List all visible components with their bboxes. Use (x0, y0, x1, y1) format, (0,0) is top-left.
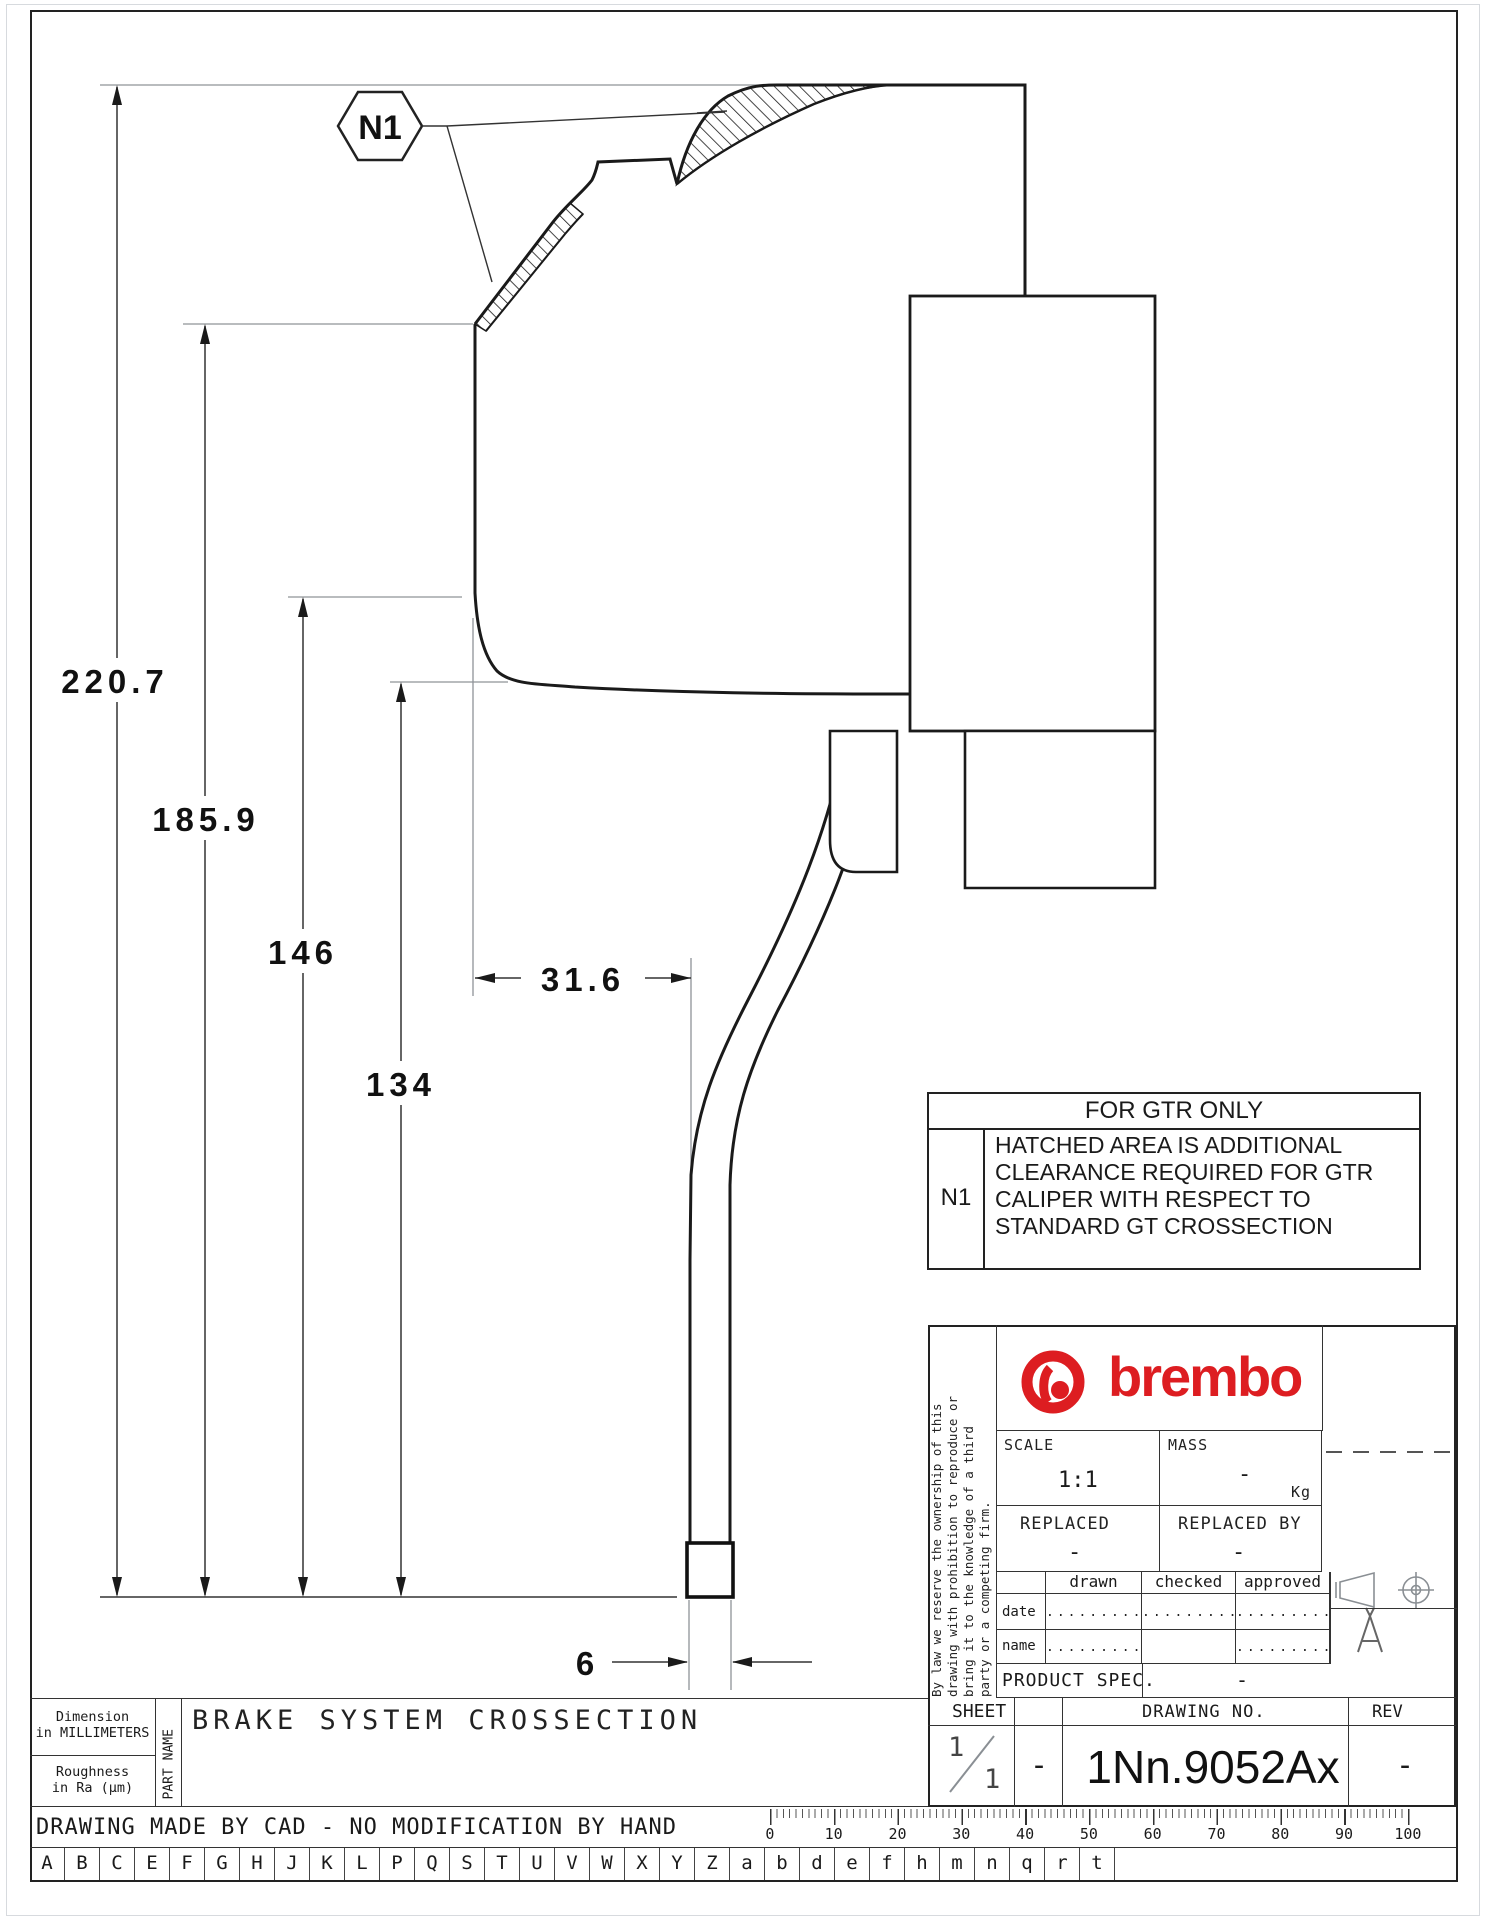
dim-185-9: 185.9 (152, 801, 260, 838)
caliper-outline (830, 296, 1155, 888)
name-drawn-cell: ......... (1046, 1630, 1142, 1664)
name-row-label: name (1002, 1638, 1036, 1654)
date-checked-dots: ......... (1142, 1605, 1239, 1620)
replaced-by-value: - (1232, 1540, 1245, 1565)
ruler-number: 30 (929, 1825, 993, 1843)
dimension-note-cell: Dimension in MILLIMETERS (30, 1698, 156, 1756)
gtr-table-title: FOR GTR ONLY (929, 1094, 1419, 1130)
replaced-by-cell: REPLACED BY - (1160, 1506, 1322, 1572)
rev-label: REV (1372, 1702, 1403, 1722)
ruler-number: 90 (1312, 1825, 1376, 1843)
zone-letter-cell: E (135, 1848, 170, 1880)
zone-letter-cell: Z (695, 1848, 730, 1880)
legal-line: bring it to the knowledge of a third (961, 1325, 977, 1697)
ruler-number: 100 (1376, 1825, 1440, 1843)
date-row-label-cell: date (996, 1594, 1046, 1630)
zone-letter-cell: B (65, 1848, 100, 1880)
brand-wordmark: brembo (1108, 1344, 1301, 1409)
ruler-number: 20 (866, 1825, 930, 1843)
sheet-denominator: 1 (984, 1764, 1000, 1795)
zone-letter-cell: F (170, 1848, 205, 1880)
gtr-note-line: HATCHED AREA IS ADDITIONAL (995, 1132, 1373, 1159)
name-approved-cell: ......... (1236, 1630, 1330, 1664)
drawing-sheet: N1 220.7 185.9 146 (0, 0, 1486, 1920)
disc-bottom-section (687, 1543, 733, 1597)
zone-letter-cell: W (590, 1848, 625, 1880)
symbols-divider (1331, 1608, 1457, 1609)
dim-31-6: 31.6 (541, 961, 625, 998)
zone-letter-cell: q (1010, 1848, 1045, 1880)
drawn-col-header: drawn (1046, 1572, 1142, 1594)
leader-lines (422, 111, 727, 282)
zone-letter-cell: r (1045, 1848, 1080, 1880)
zone-letter-cell: H (240, 1848, 275, 1880)
zone-letter-cell: b (765, 1848, 800, 1880)
gtr-note-table: FOR GTR ONLY N1 HATCHED AREA IS ADDITION… (927, 1092, 1421, 1270)
ruler-number: 70 (1185, 1825, 1249, 1843)
zone-letter-cell: Y (660, 1848, 695, 1880)
roughness-line2: in Ra (μm) (30, 1780, 155, 1796)
scale-cell: SCALE 1:1 (996, 1430, 1160, 1506)
gtr-table-ref: N1 (929, 1128, 985, 1268)
zone-letter-cell: e (835, 1848, 870, 1880)
dimension-note-line2: in MILLIMETERS (30, 1725, 155, 1741)
ruler-number: 40 (993, 1825, 1057, 1843)
date-approved-cell: ......... (1236, 1594, 1330, 1630)
product-spec-label: PRODUCT SPEC. (1002, 1670, 1156, 1691)
zone-letter-cell: X (625, 1848, 660, 1880)
ruler-number: 10 (802, 1825, 866, 1843)
legal-notice-column: By law we reserve the ownership of this … (928, 1325, 997, 1698)
zone-letter-cell: a (730, 1848, 765, 1880)
ruler-number: 0 (738, 1825, 802, 1843)
rev-value: - (1396, 1748, 1414, 1783)
zone-letter-cell: f (870, 1848, 905, 1880)
mass-unit: Kg (1291, 1483, 1311, 1501)
ruler-major-ticks (770, 1809, 1410, 1825)
zone-letter-cell: G (205, 1848, 240, 1880)
mass-value: - (1238, 1462, 1251, 1487)
drawn-label: drawn (1069, 1572, 1117, 1591)
scale-label: SCALE (1004, 1436, 1054, 1454)
zone-letter-cell: J (275, 1848, 310, 1880)
zone-letter-cell: V (555, 1848, 590, 1880)
bell-disc-walls (690, 757, 872, 1545)
mass-cell: MASS - Kg (1160, 1430, 1322, 1506)
ruler-number: 50 (1057, 1825, 1121, 1843)
gtr-table-note: HATCHED AREA IS ADDITIONAL CLEARANCE REQ… (995, 1132, 1373, 1240)
product-spec-value: - (1236, 1668, 1248, 1692)
checked-label: checked (1155, 1572, 1222, 1591)
roughness-line1: Roughness (30, 1764, 155, 1780)
sheet-number: 1 (948, 1732, 964, 1763)
name-approved-dots: ......... (1236, 1640, 1333, 1655)
symbols-box (1330, 1572, 1456, 1664)
name-checked-cell (1142, 1630, 1236, 1664)
sheet-label: SHEET (952, 1701, 1006, 1722)
legal-line: By law we reserve the ownership of this (929, 1325, 945, 1697)
date-row-label: date (1002, 1604, 1036, 1620)
product-spec-divider (1142, 1664, 1143, 1698)
zone-letter-cell: L (345, 1848, 380, 1880)
scale-value: 1:1 (1058, 1468, 1098, 1493)
drawing-no-label: DRAWING NO. (1142, 1702, 1266, 1722)
cad-note: DRAWING MADE BY CAD - NO MODIFICATION BY… (36, 1815, 677, 1840)
zone-letter-cell: Q (415, 1848, 450, 1880)
date-drawn-dots: ......... (1046, 1605, 1143, 1620)
zone-letter-cell: d (800, 1848, 835, 1880)
sign-corner-cell (996, 1572, 1046, 1594)
gtr-note-line: CLEARANCE REQUIRED FOR GTR (995, 1159, 1373, 1186)
sheet-dash: - (1030, 1748, 1048, 1783)
dimension-note-line1: Dimension (30, 1709, 155, 1725)
date-approved-dots: ......... (1236, 1605, 1333, 1620)
sheet-header-row: SHEET DRAWING NO. REV (928, 1698, 1456, 1726)
zone-letter-cell: S (450, 1848, 485, 1880)
zone-letter-cell: h (905, 1848, 940, 1880)
name-row-label-cell: name (996, 1630, 1046, 1664)
replaced-cell: REPLACED - (996, 1506, 1160, 1572)
roughness-note-cell: Roughness in Ra (μm) (30, 1756, 156, 1807)
replaced-value: - (1068, 1540, 1081, 1565)
date-checked-cell: ......... (1142, 1594, 1236, 1630)
ruler-scale: 0102030405060708090100 (738, 1824, 1440, 1843)
part-name-label: PART NAME (162, 1706, 177, 1800)
dimension-lines (117, 87, 812, 1662)
date-drawn-cell: ......... (1046, 1594, 1142, 1630)
ruler-number: 80 (1248, 1825, 1312, 1843)
gtr-note-line: STANDARD GT CROSSECTION (995, 1213, 1373, 1240)
dimension-texts: 220.7 185.9 146 134 31.6 6 (50, 658, 645, 1682)
drawing-number: 1Nn.9052Ax (1078, 1740, 1348, 1794)
legal-line: drawing with prohibition to reproduce or (945, 1325, 961, 1697)
dim-134: 134 (366, 1066, 436, 1103)
approved-col-header: approved (1236, 1572, 1330, 1594)
zone-letter-cell: m (940, 1848, 975, 1880)
part-name-cell: BRAKE SYSTEM CROSSECTION (182, 1698, 928, 1807)
zone-letter-cell: t (1080, 1848, 1115, 1880)
part-name: BRAKE SYSTEM CROSSECTION (192, 1705, 702, 1736)
replaced-by-label: REPLACED BY (1178, 1514, 1302, 1534)
name-drawn-dots: ......... (1046, 1640, 1143, 1655)
part-name-label-cell: PART NAME (156, 1698, 182, 1807)
replaced-label: REPLACED (1020, 1514, 1110, 1534)
legal-line: party or a competing firm. (977, 1325, 993, 1697)
sheet-value-row: 1 1 - 1Nn.9052Ax - (928, 1726, 1456, 1807)
dim-220-7: 220.7 (61, 663, 169, 700)
product-spec-row: PRODUCT SPEC. - (996, 1664, 1456, 1698)
dim-6: 6 (576, 1645, 594, 1682)
dimension-arrowheads (112, 85, 752, 1667)
extension-lines (100, 85, 778, 1690)
zone-letter-cell: P (380, 1848, 415, 1880)
legal-notice-text: By law we reserve the ownership of this … (929, 1325, 995, 1697)
gtr-note-line: CALIPER WITH RESPECT TO (995, 1186, 1373, 1213)
approved-label: approved (1244, 1572, 1321, 1591)
zone-letter-cell: K (310, 1848, 345, 1880)
n1-callout-label: N1 (358, 109, 401, 147)
checked-col-header: checked (1142, 1572, 1236, 1594)
zone-letter-cell: C (100, 1848, 135, 1880)
zone-letter-cell: U (520, 1848, 555, 1880)
zone-letter-cell: T (485, 1848, 520, 1880)
ruler-number: 60 (1121, 1825, 1185, 1843)
zone-letter-cell: A (30, 1848, 65, 1880)
letters-strip: ABCEFGHJKLPQSTUVWXYZabdefhmnqrt (30, 1848, 1456, 1880)
zone-letter-cell: n (975, 1848, 1010, 1880)
mass-label: MASS (1168, 1436, 1208, 1454)
dim-146: 146 (268, 934, 338, 971)
